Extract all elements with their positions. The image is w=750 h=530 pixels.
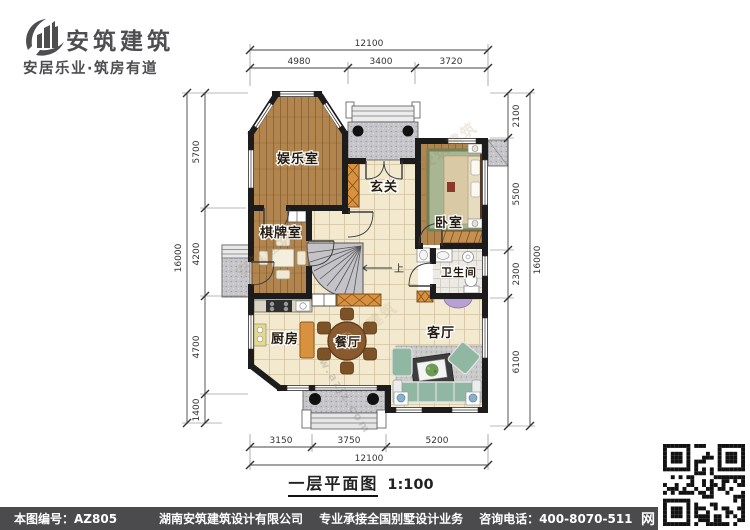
drawing-caption: 一层平面图1:100 <box>256 470 466 494</box>
hall-vanity <box>417 248 430 262</box>
contact-phone: 咨询电话：400-8070-511 <box>479 510 632 527</box>
kitchen-island <box>300 322 314 358</box>
drawing-number: 本图编号：AZ805 <box>14 510 117 527</box>
porch-column <box>309 393 321 405</box>
ac-platform <box>488 140 508 166</box>
footer-bar: 本图编号：AZ805 湖南安筑建筑设计有限公司 专业承接全国别墅设计业务 咨询电… <box>0 507 750 530</box>
porch-column <box>353 126 364 137</box>
dim-left-total: 16000 <box>174 243 184 272</box>
room-label-bedroom: 卧室 <box>435 215 463 231</box>
dim-right-seg-3: 6100 <box>512 350 522 373</box>
caption-scale: 1:100 <box>387 477 433 493</box>
room-label-entertainment: 娱乐室 <box>277 151 319 167</box>
kitchen-side-unit <box>254 324 266 346</box>
qr-code-pattern <box>663 444 745 526</box>
dim-left-seg-1: 4200 <box>192 242 202 265</box>
sofa-main <box>400 382 474 402</box>
room-label-kitchen: 厨房 <box>271 331 299 347</box>
dim-top-seg-1: 3400 <box>370 57 393 67</box>
dim-right-total: 16000 <box>533 245 543 274</box>
dim-bottom-seg-1: 3750 <box>338 436 361 446</box>
net-label: 网 <box>641 509 655 529</box>
sofa-set <box>392 341 484 405</box>
porch-column <box>367 393 379 405</box>
dim-bottom-seg-0: 3150 <box>270 436 293 446</box>
dim-right-seg-1: 5500 <box>512 182 522 205</box>
room-label-bathroom: 卫生间 <box>441 265 477 279</box>
dim-bottom-total: 12100 <box>355 454 384 464</box>
dim-bottom-seg-2: 5200 <box>426 436 449 446</box>
dim-top-total: 12100 <box>355 39 384 49</box>
room-label-foyer: 玄关 <box>370 179 398 195</box>
qr-code <box>658 440 750 530</box>
porch-column <box>403 126 414 137</box>
kitchen-counter <box>254 300 312 312</box>
wardrobe <box>442 231 482 243</box>
dim-left-seg-2: 4700 <box>192 335 202 358</box>
dim-right-seg-0: 2100 <box>512 104 522 127</box>
armchair-left <box>392 348 412 376</box>
top-porch <box>346 102 420 160</box>
stair-up-label: 上 <box>394 263 404 275</box>
chess-cabinet <box>288 211 306 222</box>
hall-cabinet <box>337 294 381 306</box>
caption-title: 一层平面图 <box>288 474 378 497</box>
company-name: 湖南安筑建筑设计有限公司 <box>159 510 303 527</box>
dim-top-seg-0: 4980 <box>288 57 311 67</box>
floorplan-drawing: 上 <box>0 0 750 530</box>
floorplan-sheet: { "header": { "brand": "安筑建筑", "tagline"… <box>0 0 750 530</box>
service-scope: 专业承接全国别墅设计业务 <box>319 510 463 527</box>
stove <box>266 300 292 312</box>
dim-top-seg-2: 3720 <box>440 57 463 67</box>
room-label-living: 客厅 <box>427 325 455 341</box>
washer <box>463 252 474 263</box>
dim-right-seg-2: 2300 <box>512 262 522 285</box>
dim-left-seg-3: 1400 <box>192 398 202 421</box>
dim-left-seg-0: 5700 <box>192 140 202 163</box>
hall-shoe-cabinet <box>312 294 336 306</box>
